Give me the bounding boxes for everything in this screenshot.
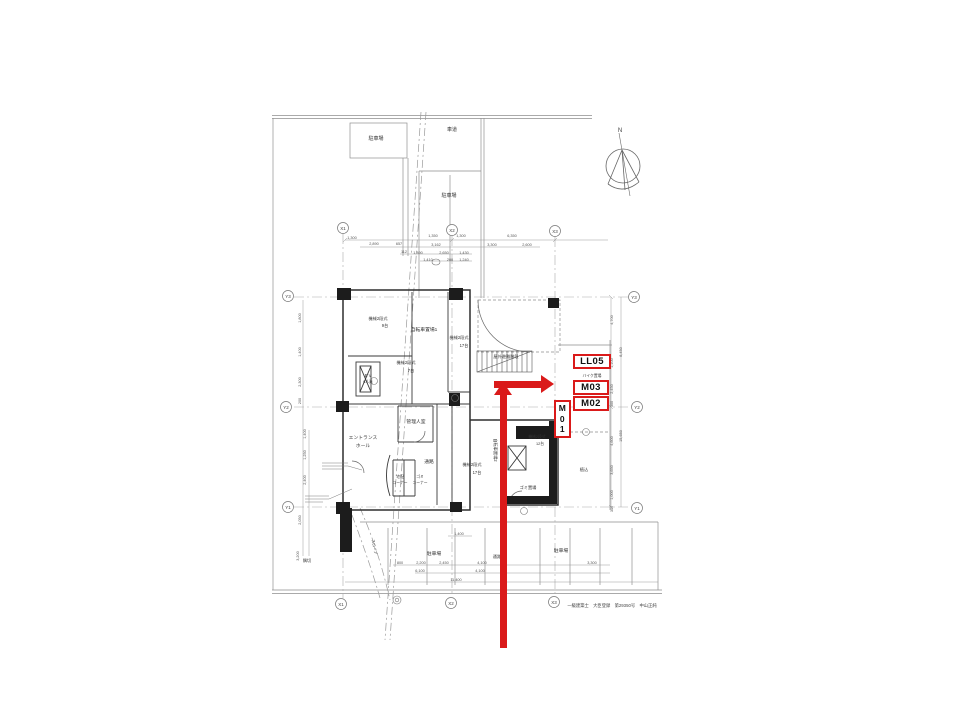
- dimension-label: 4,700: [610, 315, 614, 325]
- grid-bubble-label: X3: [552, 229, 558, 234]
- dimension-label: 1,240: [459, 258, 469, 262]
- dimension-label: 2,650: [439, 251, 449, 255]
- dimension-label: 4,600: [610, 436, 614, 446]
- room-label: 宅配: [396, 474, 404, 479]
- room-label: 通路: [424, 458, 434, 465]
- room-label: 機械2段式: [449, 334, 469, 341]
- compass-north-label: N: [618, 128, 622, 134]
- room-label: 管理人室: [406, 418, 425, 425]
- architect-title-text: 一級建築士 大臣登録 第29350号 中山正純: [567, 602, 657, 609]
- grid-bubble-label: Y2: [283, 405, 289, 410]
- dimension-label: 1,000: [610, 490, 614, 500]
- dimension-label: 1,400: [298, 347, 302, 357]
- room-label: 自転車置場2: [492, 438, 499, 462]
- site-boundary-lines: [272, 116, 662, 594]
- floor-plan-drawing: N 一級建築士 大臣登録 第29350号 中山正純 駐車場車道駐車場機械2段式9…: [0, 0, 960, 720]
- dimension-label: 3,162: [431, 243, 441, 247]
- room-label: 通路: [493, 553, 502, 560]
- room-label: 機械2段式: [528, 434, 546, 439]
- room-label: 駐車場: [368, 135, 383, 142]
- dimension-label: 1,250: [303, 450, 307, 460]
- dimension-label: 800: [397, 561, 403, 565]
- dimension-label: 1,800: [298, 313, 302, 323]
- dimension-label: 4,100: [475, 569, 485, 573]
- dimension-label: 1,300: [456, 234, 466, 238]
- door-arcs: [352, 300, 530, 504]
- grid-bubble-label: Y3: [285, 294, 291, 299]
- north-compass: [606, 133, 640, 196]
- room-label: 植込: [580, 466, 589, 473]
- room-label: ゴミ置場: [520, 484, 538, 491]
- grid-bubble-label: Y3: [631, 295, 637, 300]
- room-label: 17台: [460, 342, 469, 349]
- dimension-label: 11,400: [450, 578, 461, 582]
- room-label: 自転車置場1: [411, 326, 438, 333]
- room-label: 7台: [408, 367, 415, 374]
- dimension-label: 2,600: [522, 243, 532, 247]
- room-label: 12台: [536, 441, 544, 446]
- dimension-label: 1,400: [303, 429, 307, 439]
- room-label: ホール: [356, 443, 371, 449]
- dimension-label: 1,300: [347, 236, 357, 240]
- dimension-label: 200: [298, 398, 302, 404]
- room-label: バイク置場: [583, 373, 602, 378]
- dimension-label: 200: [447, 258, 453, 262]
- dimension-label: 2,450: [610, 384, 614, 394]
- dimension-label: 112: [401, 250, 407, 254]
- dimension-label: 3,200: [296, 551, 300, 561]
- slide-canvas: N 一級建築士 大臣登録 第29350号 中山正純 駐車場車道駐車場機械2段式9…: [0, 0, 960, 720]
- dimension-label: 3,650: [610, 465, 614, 475]
- room-label: 17台: [473, 469, 482, 476]
- dimension-label: 3,300: [587, 561, 597, 565]
- room-label: コーナー: [392, 480, 407, 485]
- grid-bubble-label: Y1: [285, 505, 291, 510]
- room-label: E V: [365, 373, 372, 378]
- dimension-label: 2,050: [298, 515, 302, 525]
- grid-bubble-label: X1: [338, 602, 344, 607]
- annotation-note-lines: [305, 463, 362, 502]
- grid-bubble-label: X1: [340, 226, 346, 231]
- grid-bubble-label: Y1: [634, 506, 640, 511]
- room-label: 車道: [447, 126, 457, 133]
- room-label: 機械2段式: [368, 315, 388, 322]
- dimension-label: 2,200: [416, 561, 426, 565]
- dimension-label: 15,650: [619, 430, 623, 442]
- dimension-label: 6,350: [507, 234, 517, 238]
- dimension-label: 1,890: [413, 251, 423, 255]
- grid-bubble-label: X3: [551, 600, 557, 605]
- driveway-dashed-lines: [352, 112, 426, 640]
- dimension-label: 4,100: [477, 561, 487, 565]
- room-label: コーナー: [412, 480, 427, 485]
- grid-bubble-label: Y2: [634, 405, 640, 410]
- dimension-label: 1,400: [454, 532, 464, 536]
- labels-layer: 駐車場車道駐車場機械2段式9台自転車置場1機械2段式17台E V6人乗機械2段式…: [281, 126, 643, 610]
- room-label: エントランス: [349, 435, 378, 441]
- room-label: ゴミ: [416, 474, 424, 479]
- dimension-label: 300: [610, 506, 614, 512]
- dimension-label: 1,350: [428, 234, 438, 238]
- dimension-label: 3,300: [487, 243, 497, 247]
- room-label: 屋外避難階段: [493, 353, 519, 360]
- dimension-label: 2,890: [369, 242, 379, 246]
- dimension-label: 300: [610, 401, 614, 407]
- dimension-label: 2,450: [439, 561, 449, 565]
- room-label: 機械2段式: [396, 359, 416, 366]
- dimension-label: 8,450: [619, 347, 623, 357]
- room-label: 6人乗: [363, 379, 373, 384]
- room-label: 9台: [382, 322, 389, 329]
- grid-bubble-label: X2: [449, 228, 455, 233]
- dimension-label: 2,400: [303, 475, 307, 485]
- room-label: 機械2段式: [462, 461, 482, 468]
- dimension-label: 657: [396, 242, 402, 246]
- room-label: スロープ: [370, 539, 378, 555]
- dimension-label: 1,100: [610, 358, 614, 368]
- interior-walls: [343, 292, 526, 505]
- dimension-label: 1,430: [459, 251, 469, 255]
- room-label: 駐車場: [441, 192, 456, 199]
- room-label: 駐車場: [554, 547, 569, 554]
- room-label: 駐車場: [427, 550, 442, 557]
- grid-bubble-label: X2: [448, 601, 454, 606]
- room-label: 隅切: [303, 557, 311, 564]
- dimension-label: 2,300: [298, 377, 302, 387]
- dimension-label: 1,410: [423, 258, 433, 262]
- dimension-label: 6,100: [415, 569, 425, 573]
